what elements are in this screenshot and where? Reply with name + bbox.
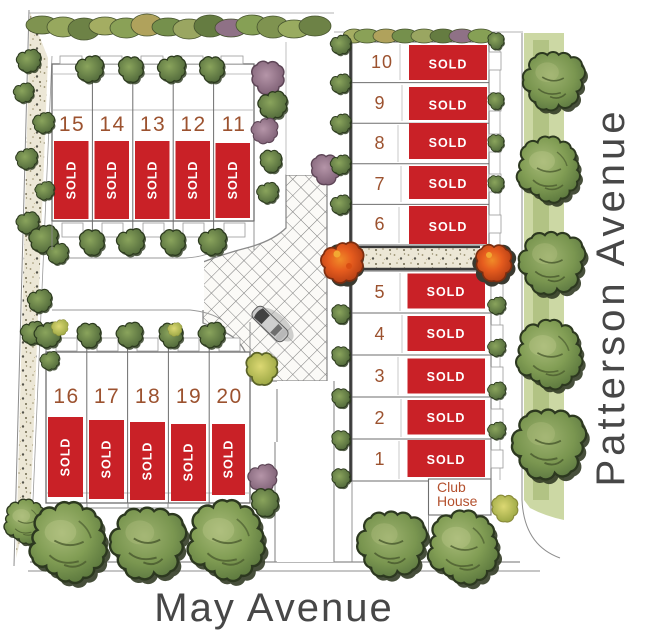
svg-text:SOLD: SOLD [429,58,468,72]
svg-text:SOLD: SOLD [427,370,466,384]
svg-text:17: 17 [94,385,120,408]
svg-text:SOLD: SOLD [146,161,160,200]
svg-text:19: 19 [176,385,202,408]
svg-text:18: 18 [135,385,161,408]
svg-text:9: 9 [374,93,385,113]
svg-text:SOLD: SOLD [427,327,466,341]
svg-text:SOLD: SOLD [226,161,240,200]
svg-text:SOLD: SOLD [427,453,466,467]
svg-text:3: 3 [374,366,385,386]
svg-text:8: 8 [374,133,385,153]
svg-text:5: 5 [374,282,385,302]
svg-text:SOLD: SOLD [186,161,200,200]
svg-text:SOLD: SOLD [105,161,119,200]
svg-text:20: 20 [216,385,242,408]
svg-text:SOLD: SOLD [141,442,155,481]
svg-text:7: 7 [374,174,385,194]
svg-text:16: 16 [53,385,79,408]
svg-text:4: 4 [374,324,385,344]
svg-text:May Avenue: May Avenue [154,586,393,630]
svg-text:14: 14 [99,113,125,136]
svg-text:SOLD: SOLD [59,438,73,477]
svg-text:House: House [437,493,478,509]
svg-text:10: 10 [371,52,393,72]
svg-text:1: 1 [374,449,385,469]
svg-text:SOLD: SOLD [427,411,466,425]
svg-text:SOLD: SOLD [427,285,466,299]
svg-text:2: 2 [374,408,385,428]
svg-text:SOLD: SOLD [429,177,468,191]
svg-text:SOLD: SOLD [429,136,468,150]
svg-text:SOLD: SOLD [429,99,468,113]
svg-text:SOLD: SOLD [182,443,196,482]
svg-text:12: 12 [180,113,206,136]
svg-text:SOLD: SOLD [222,440,236,479]
svg-text:11: 11 [222,113,247,136]
svg-text:SOLD: SOLD [429,220,468,234]
svg-text:6: 6 [374,214,385,234]
svg-text:SOLD: SOLD [100,440,114,479]
svg-text:15: 15 [59,113,85,136]
svg-text:13: 13 [140,113,166,136]
svg-text:Patterson Avenue: Patterson Avenue [589,107,633,486]
svg-text:SOLD: SOLD [65,161,79,200]
